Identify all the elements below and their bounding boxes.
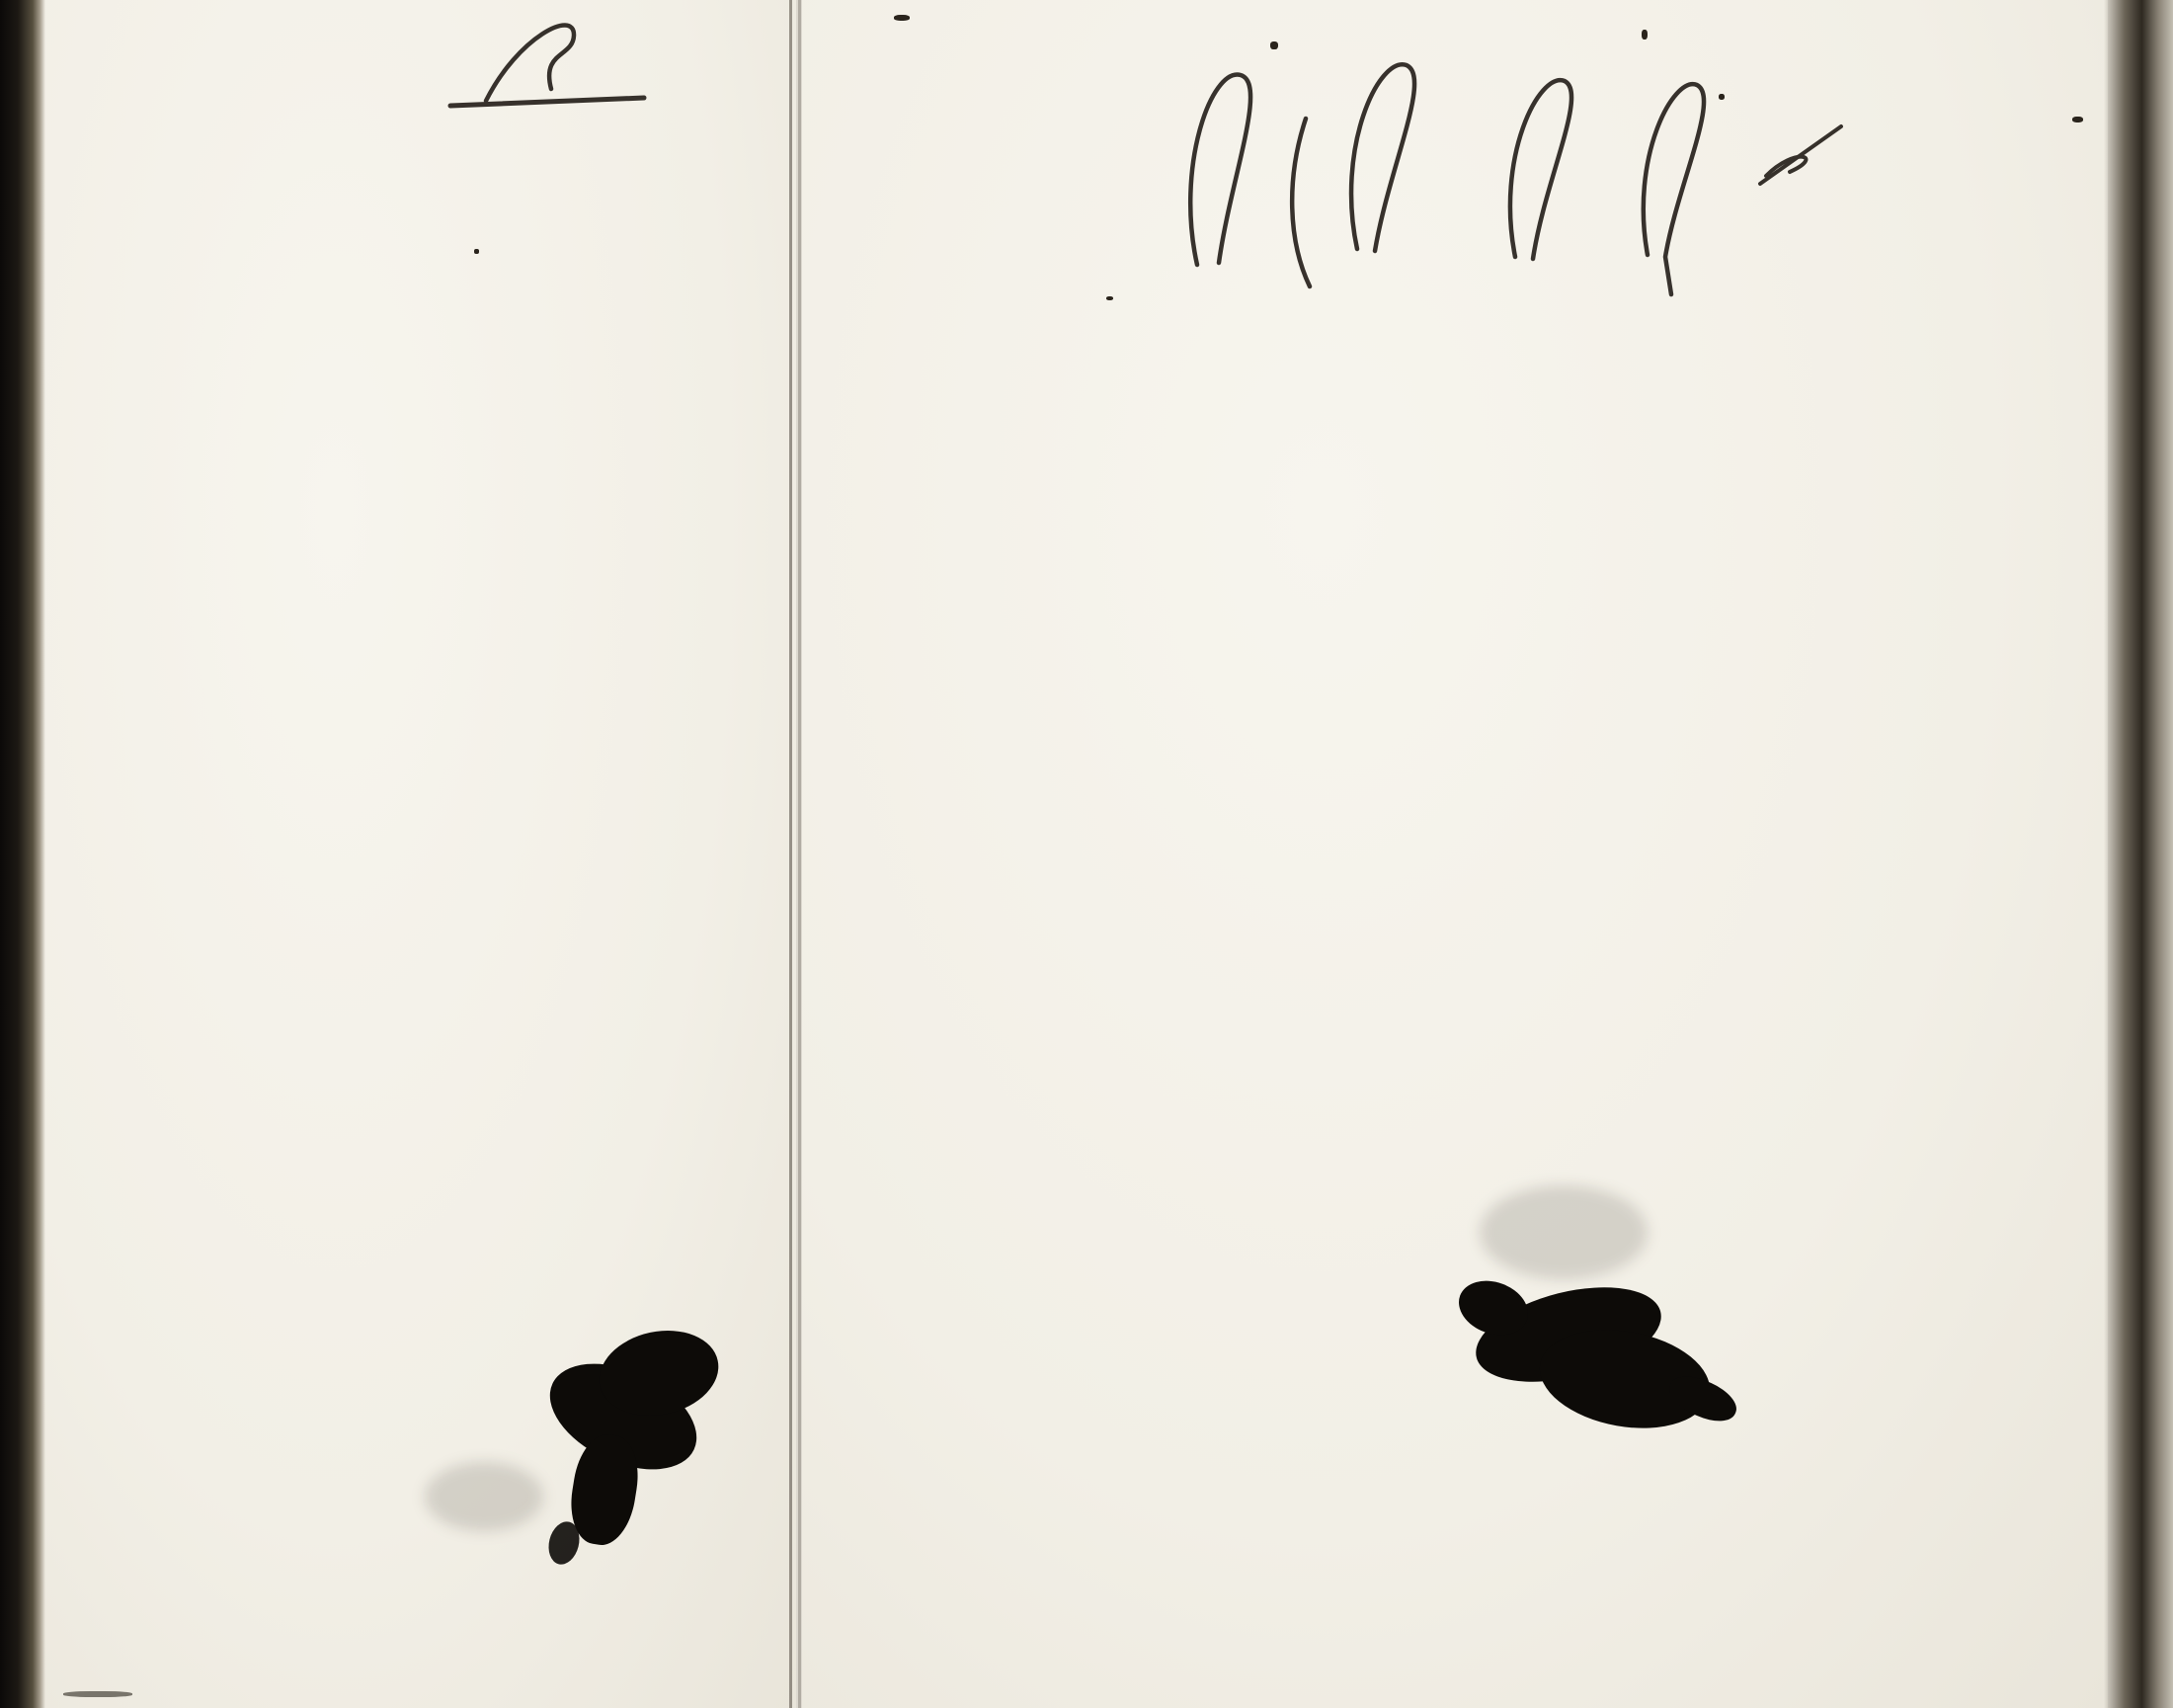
- paper-speck: [1642, 30, 1648, 40]
- paper-speck: [1719, 94, 1725, 100]
- right-page-sheet: [802, 0, 2108, 1708]
- page-gutter-line: [798, 0, 801, 1708]
- paper-speck: [1106, 296, 1113, 300]
- ledger-scan: [0, 0, 2173, 1708]
- paper-speck: [63, 1691, 132, 1697]
- paper-speck: [894, 15, 910, 21]
- ink-smudge: [1480, 1185, 1648, 1279]
- ink-smudge: [425, 1462, 543, 1531]
- paper-speck: [474, 249, 479, 254]
- binding-edge: [0, 0, 45, 1708]
- paper-speck: [1270, 41, 1278, 49]
- paper-speck: [2072, 117, 2083, 122]
- page-edge-right: [2104, 0, 2173, 1708]
- page-gutter-line: [789, 0, 792, 1708]
